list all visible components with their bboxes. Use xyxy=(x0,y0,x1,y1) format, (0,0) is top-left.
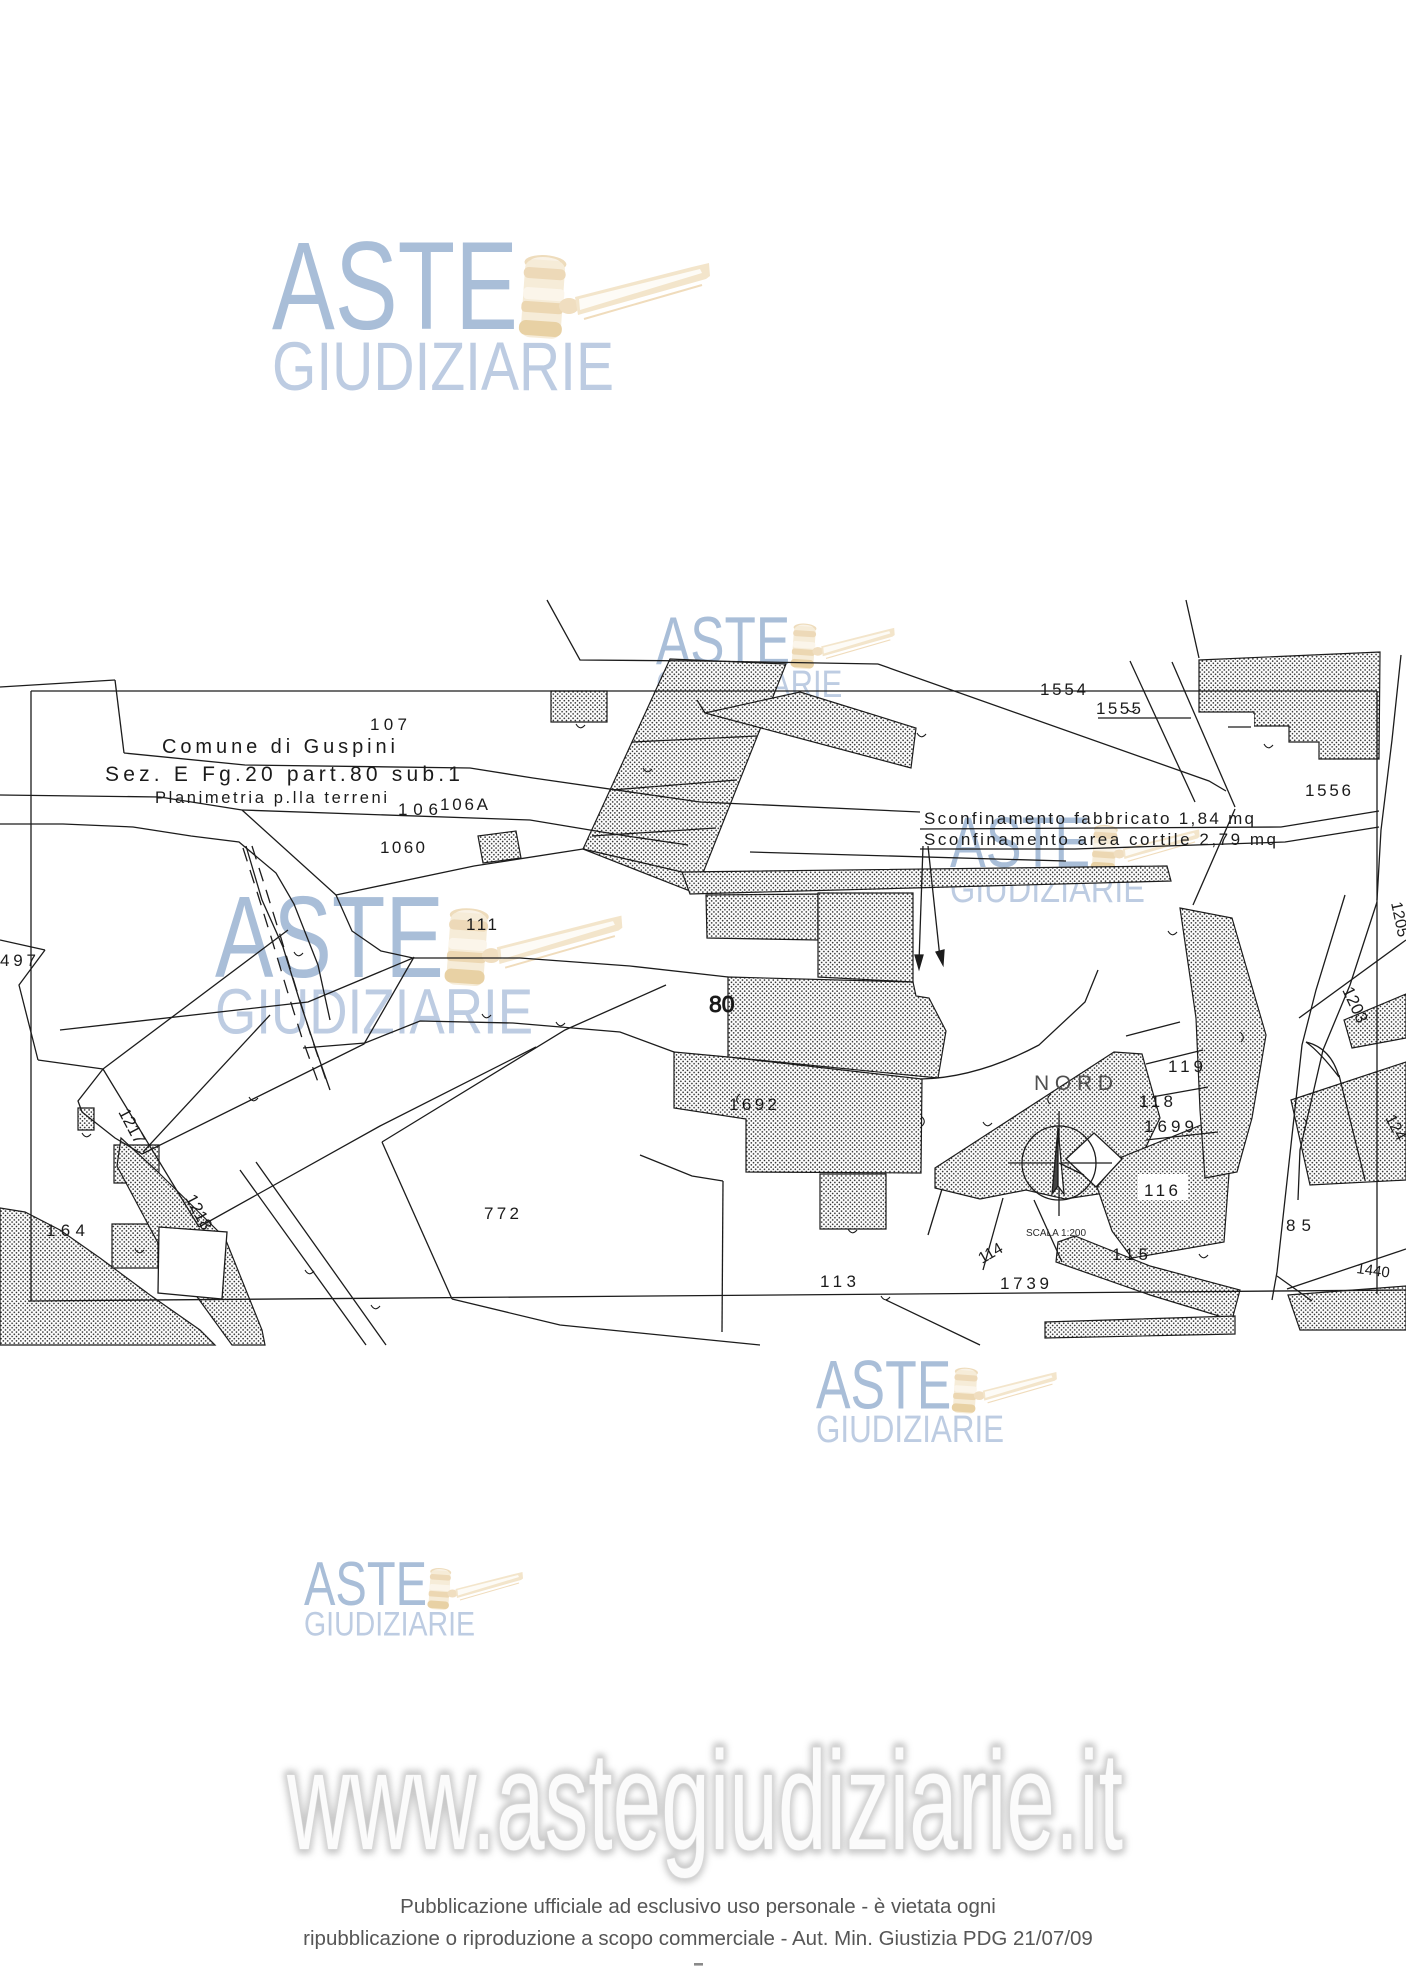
svg-text:1739: 1739 xyxy=(1000,1274,1049,1293)
svg-text:Comune di Guspini: Comune di Guspini xyxy=(162,736,395,758)
svg-text:SCALA 1:200: SCALA 1:200 xyxy=(1026,1228,1086,1239)
svg-text:80: 80 xyxy=(709,991,735,1017)
svg-text:1699: 1699 xyxy=(1144,1117,1194,1136)
svg-text:106A: 106A xyxy=(440,795,489,814)
svg-text:772: 772 xyxy=(484,1204,519,1223)
svg-text:1440: 1440 xyxy=(1355,1260,1390,1281)
svg-text:Pubblicazione ufficiale ad esc: Pubblicazione ufficiale ad esclusivo uso… xyxy=(400,1895,996,1918)
svg-text:111: 111 xyxy=(466,915,497,934)
svg-text:164: 164 xyxy=(46,1221,85,1240)
svg-text:ripubblicazione o riproduzione: ripubblicazione o riproduzione a scopo c… xyxy=(303,1927,1093,1950)
svg-text:106: 106 xyxy=(398,800,438,819)
svg-text:85: 85 xyxy=(1286,1216,1311,1235)
svg-text:Sconfinamento fabbricato 1,84: Sconfinamento fabbricato 1,84 mq xyxy=(924,809,1254,828)
svg-text:1555: 1555 xyxy=(1096,699,1141,718)
svg-text:1554: 1554 xyxy=(1040,680,1086,699)
svg-text:114: 114 xyxy=(976,1240,1007,1268)
svg-text:119: 119 xyxy=(1168,1057,1203,1076)
svg-text:Sconfinamento area cortile 2,7: Sconfinamento area cortile 2,79 mq xyxy=(924,830,1276,849)
svg-text:Sez. E Fg.20 part.80 sub.1: Sez. E Fg.20 part.80 sub.1 xyxy=(105,763,460,786)
svg-text:1556: 1556 xyxy=(1305,781,1351,800)
svg-text:497: 497 xyxy=(0,951,36,970)
svg-text:115: 115 xyxy=(1112,1245,1148,1264)
svg-text:Planimetria p.lla terreni: Planimetria p.lla terreni xyxy=(155,789,387,807)
svg-text:107: 107 xyxy=(370,715,407,734)
svg-text:www.astegiudiziarie.it: www.astegiudiziarie.it xyxy=(286,1722,1123,1879)
svg-text:118: 118 xyxy=(1139,1092,1173,1111)
svg-text:116: 116 xyxy=(1144,1181,1178,1200)
svg-text:113: 113 xyxy=(820,1272,856,1291)
svg-text:1205: 1205 xyxy=(1387,900,1406,938)
svg-text:1060: 1060 xyxy=(380,838,425,857)
